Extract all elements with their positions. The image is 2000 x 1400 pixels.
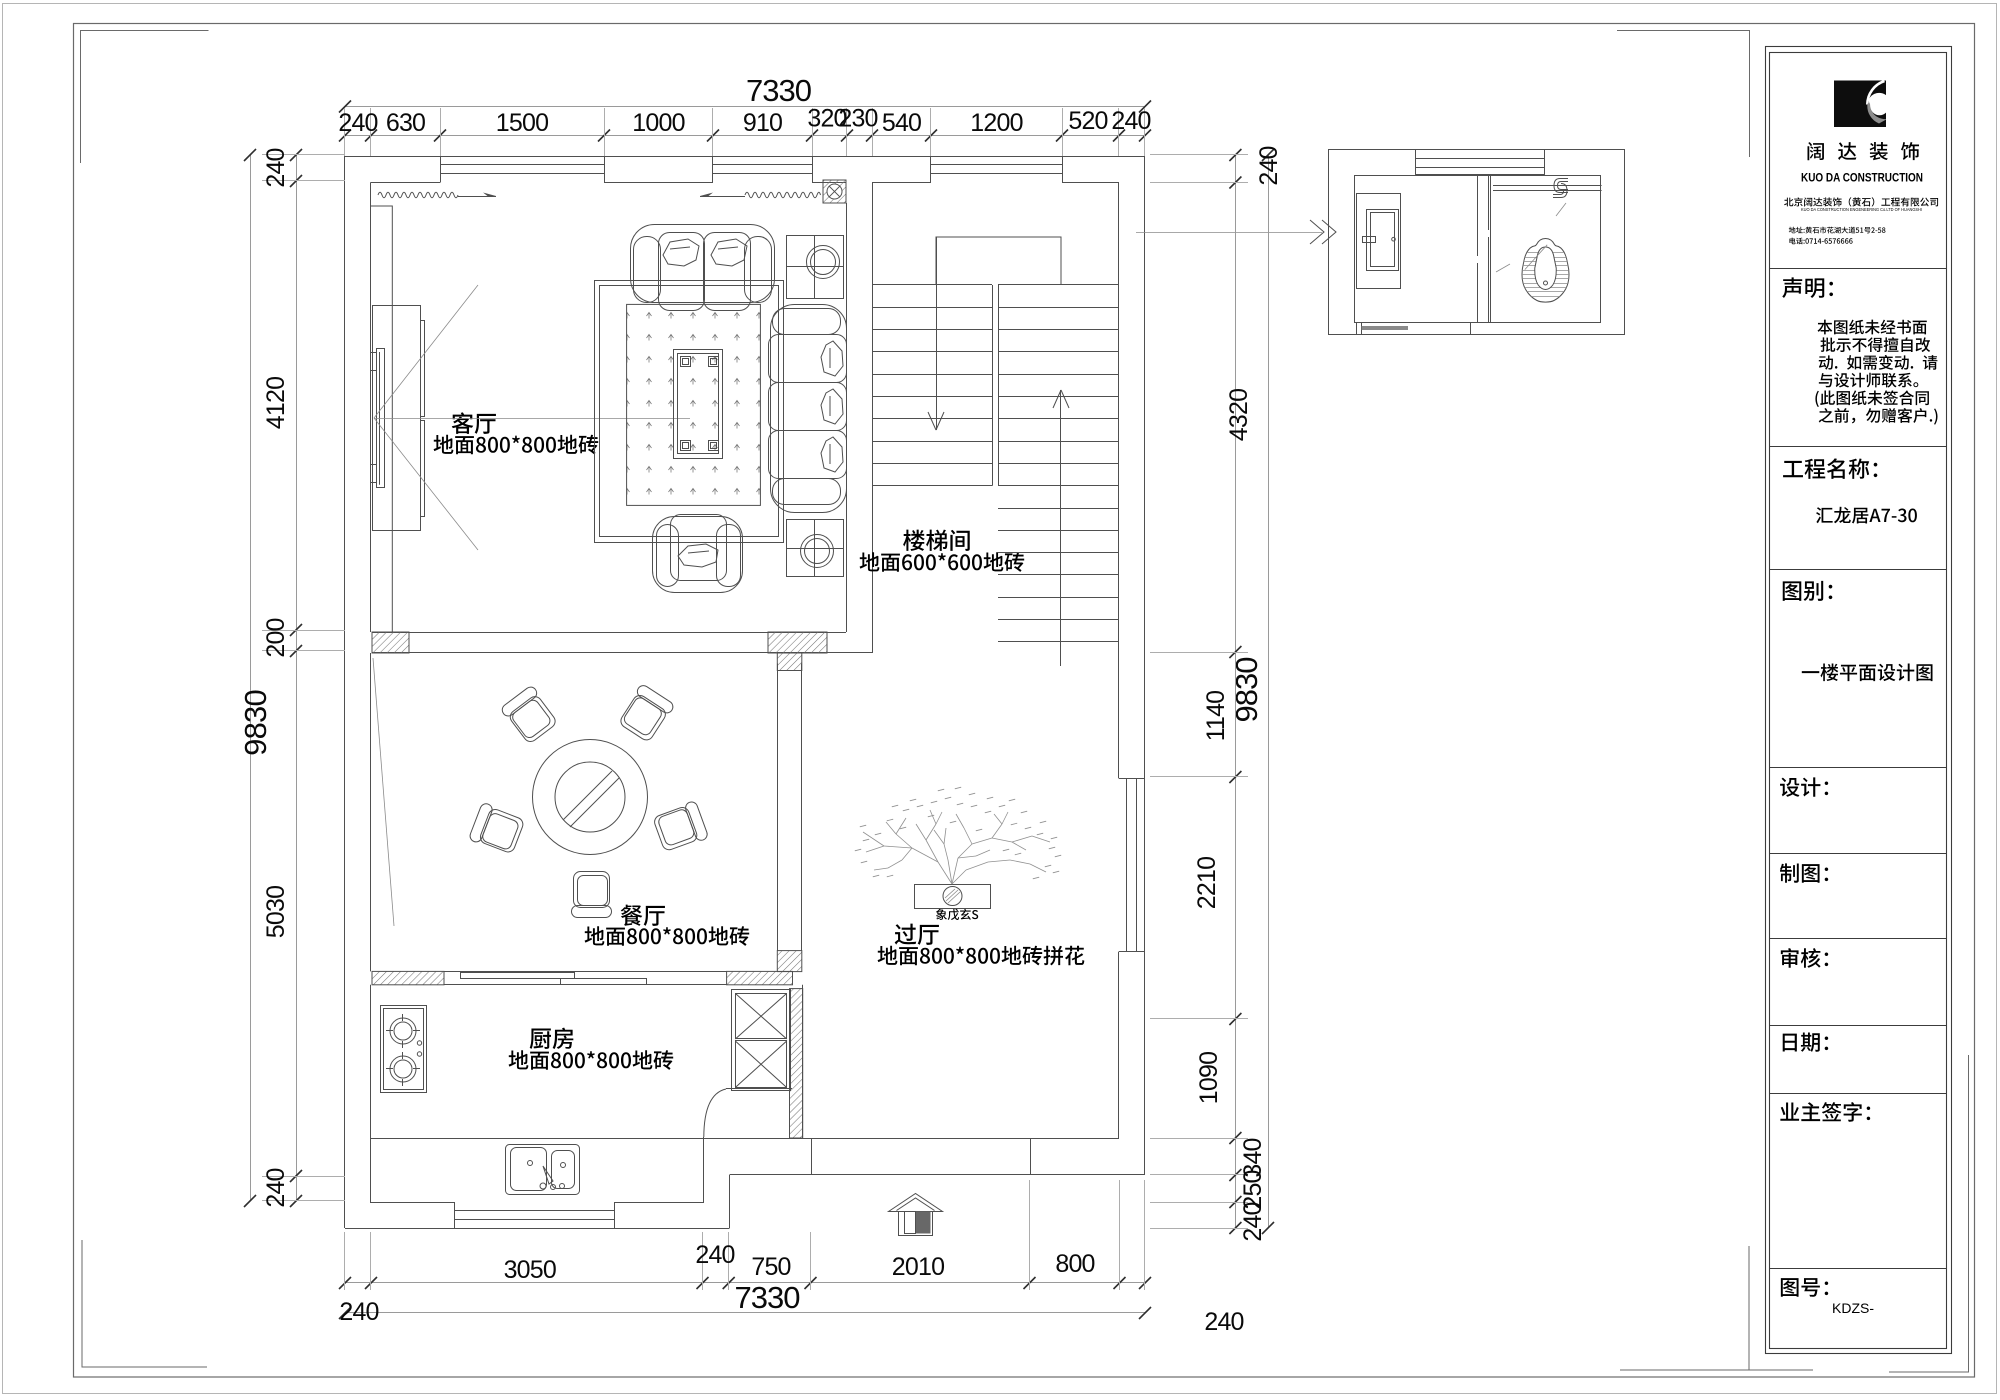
svg-text:4120: 4120 — [262, 377, 290, 429]
svg-text:540: 540 — [882, 109, 921, 137]
svg-text:240: 240 — [1111, 107, 1150, 135]
svg-text:520: 520 — [1068, 107, 1107, 135]
svg-text:1500: 1500 — [496, 109, 548, 137]
svg-text:910: 910 — [743, 109, 782, 137]
svg-text:200: 200 — [262, 618, 290, 657]
svg-text:KUO DA CONSTRUCTION: KUO DA CONSTRUCTION — [1801, 173, 1923, 185]
svg-text:630: 630 — [386, 109, 425, 137]
svg-text:240: 240 — [262, 1168, 290, 1207]
svg-text:1090: 1090 — [1195, 1052, 1223, 1104]
svg-text:5030: 5030 — [262, 886, 290, 938]
svg-text:750: 750 — [751, 1253, 790, 1281]
svg-text:240: 240 — [1255, 146, 1283, 185]
svg-text:2210: 2210 — [1193, 857, 1221, 909]
svg-text:2010: 2010 — [892, 1253, 944, 1281]
svg-text:240: 240 — [339, 1298, 378, 1326]
svg-text:240: 240 — [262, 148, 290, 187]
svg-text:240: 240 — [338, 109, 377, 137]
svg-text:9830: 9830 — [238, 690, 273, 756]
svg-text:3050: 3050 — [504, 1256, 556, 1284]
svg-text:230: 230 — [838, 105, 877, 133]
svg-text:240: 240 — [1239, 1202, 1267, 1241]
svg-text:7330: 7330 — [746, 73, 812, 108]
svg-text:240: 240 — [695, 1241, 734, 1269]
svg-text:KDZS-: KDZS- — [1832, 1300, 1874, 1316]
svg-text:1140: 1140 — [1202, 691, 1230, 742]
svg-text:4320: 4320 — [1225, 389, 1253, 441]
svg-text:KUO DA CONSTRUCTION ENGENEERIN: KUO DA CONSTRUCTION ENGENEERING Co.LTD O… — [1801, 207, 1922, 212]
svg-text:7330: 7330 — [735, 1280, 801, 1315]
svg-text:240: 240 — [1204, 1308, 1243, 1336]
svg-text:9830: 9830 — [1229, 657, 1264, 723]
svg-text:1200: 1200 — [970, 109, 1022, 137]
svg-text:800: 800 — [1055, 1250, 1094, 1278]
svg-text:1000: 1000 — [632, 109, 684, 137]
